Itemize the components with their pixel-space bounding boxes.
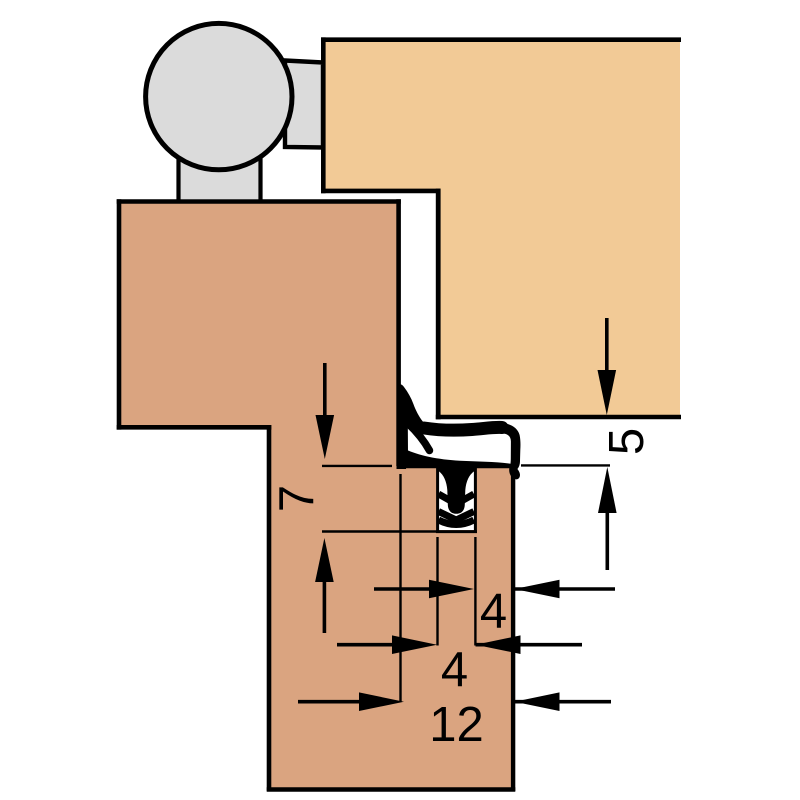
svg-text:7: 7 xyxy=(270,485,324,512)
svg-text:12: 12 xyxy=(429,698,484,752)
svg-text:5: 5 xyxy=(600,428,654,455)
svg-text:4: 4 xyxy=(441,643,468,697)
svg-text:4: 4 xyxy=(480,585,507,639)
